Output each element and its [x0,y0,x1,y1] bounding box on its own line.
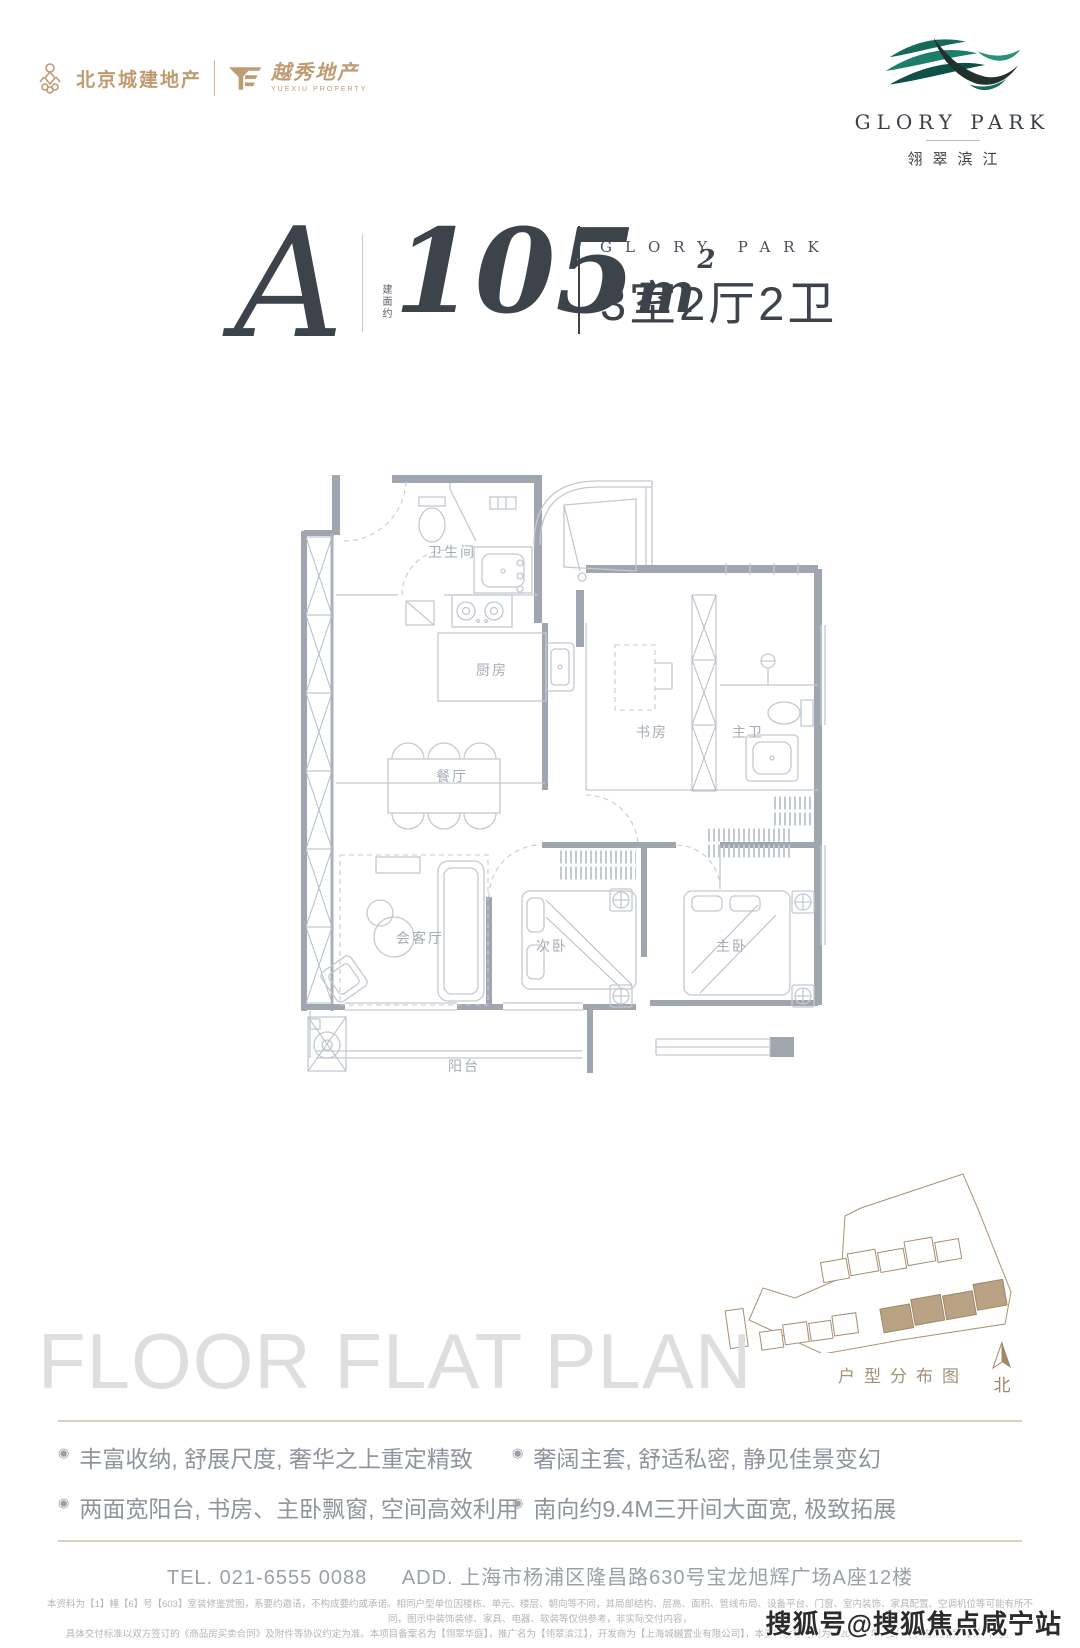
yuexiu-logo: 越秀地产 YUEXIU PROPERTY [227,63,367,93]
bullet-icon: ◉ [512,1440,523,1466]
north-arrow-icon [987,1340,1017,1370]
kitchen-sink-icon [546,643,574,691]
room-label-living: 会客厅 [396,930,444,946]
room-label-dining: 餐厅 [436,768,468,784]
walls-layer [304,475,818,1073]
bullet-icon: ◉ [512,1490,523,1516]
feature-text: 奢阔主套, 舒适私密, 静见佳景变幻 [533,1440,881,1474]
logo-rule [926,140,980,141]
north-label: 北 [994,1371,1011,1396]
fan-coil-units [610,889,814,1007]
layout-spec-block: GLORY PARK 3室2厅2卫 [600,238,837,334]
floor-plan: 卫生间 厨房 餐厅 书房 主卫 会客厅 次卧 主卧 阳台 [280,445,830,1080]
glory-park-wave-icon [878,28,1028,106]
poster-page: 北京城建地产 越秀地产 YUEXIU PROPERTY [0,0,1080,1648]
site-plan-caption: 户型分布图 [838,1362,968,1387]
armchair [319,954,369,1004]
floor-lamp [367,900,414,957]
toilet-icon [419,497,445,542]
shower-panel [450,483,476,541]
tv-cabinet [376,857,420,873]
feature-text: 两面宽阳台, 书房、主卧飘窗, 空间高效利用 [79,1490,519,1524]
title-divider-dark [578,226,580,334]
divider-top [58,1420,1022,1422]
stove-icon [452,595,512,627]
site-plan [705,1108,1080,1353]
room-label-balcony: 阳台 [448,1058,480,1074]
logo-divider [214,60,215,96]
contact-tel: TEL. 021-6555 0088 [167,1567,367,1589]
glory-park-cn-text: 翎翠滨江 [907,148,1007,169]
yuexiu-logo-text: 越秀地产 [271,63,367,83]
developer-logos: 北京城建地产 越秀地产 YUEXIU PROPERTY [36,60,367,96]
feature-text: 南向约9.4M三开间大面宽, 极致拓展 [533,1490,896,1524]
feature-item: ◉ 两面宽阳台, 书房、主卧飘窗, 空间高效利用 [58,1490,519,1524]
watermark-text: 搜狐号@搜狐焦点咸宁站 [766,1604,1062,1641]
layout-spec-text: 3室2厅2卫 [600,265,837,334]
dining-table [388,743,500,829]
washer-icon [308,1017,346,1071]
site-buildings-row-highlighted [879,1279,1009,1332]
entry-cabinet [406,601,434,625]
room-label-kitchen: 厨房 [476,662,508,678]
feature-text: 丰富收纳, 舒展尺度, 奢华之上重定精致 [79,1440,473,1474]
title-divider-light [362,234,363,332]
bullet-icon: ◉ [58,1490,69,1516]
glory-park-logo-text: GLORY PARK [855,110,1051,134]
room-label-bath: 卫生间 [428,544,476,560]
yuexiu-logo-subtext: YUEXIU PROPERTY [271,86,367,93]
contact-line: TEL. 021-6555 0088 ADD. 上海市杨浦区隆昌路630号宝龙旭… [0,1561,1080,1590]
area-prefix-label: 建面约 [378,284,393,320]
wardrobe-combs [560,803,814,873]
bjcj-emblem-icon [36,62,64,94]
contact-address: ADD. 上海市杨浦区隆昌路630号宝龙旭辉广场A座12楼 [402,1567,913,1589]
feature-item: ◉ 丰富收纳, 舒展尺度, 奢华之上重定精致 [58,1440,473,1474]
ac-shaft-hatch [306,537,332,1003]
site-buildings-row-upper [819,1233,961,1283]
feature-item: ◉ 南向约9.4M三开间大面宽, 极致拓展 [512,1490,896,1524]
divider-bottom [58,1540,1022,1542]
closet-column-hatch [692,595,716,791]
yuexiu-mark-icon [227,64,263,92]
feature-item: ◉ 奢阔主套, 舒适私密, 静见佳景变幻 [512,1440,881,1474]
bullet-icon: ◉ [58,1440,69,1466]
master-bath-fixtures [720,654,818,781]
study-desk [615,645,672,710]
unit-letter: A [234,208,344,360]
section-caption: FLOOR FLAT PLAN [38,1322,752,1400]
bjcj-logo-text: 北京城建地产 [76,65,202,92]
spec-brand-text: GLORY PARK [600,238,837,256]
room-label-master-bath: 主卫 [732,724,764,740]
washbasin-icon [474,547,532,593]
bay-wall-block [770,1037,794,1057]
room-label-bedroom2: 次卧 [536,938,568,954]
room-label-master: 主卧 [716,938,748,954]
door-swings [340,479,720,1005]
sofa [438,861,484,1001]
north-indicator: 北 [985,1340,1019,1396]
room-label-study: 书房 [636,724,668,740]
project-logo: GLORY PARK 翎翠滨江 [845,28,1060,169]
